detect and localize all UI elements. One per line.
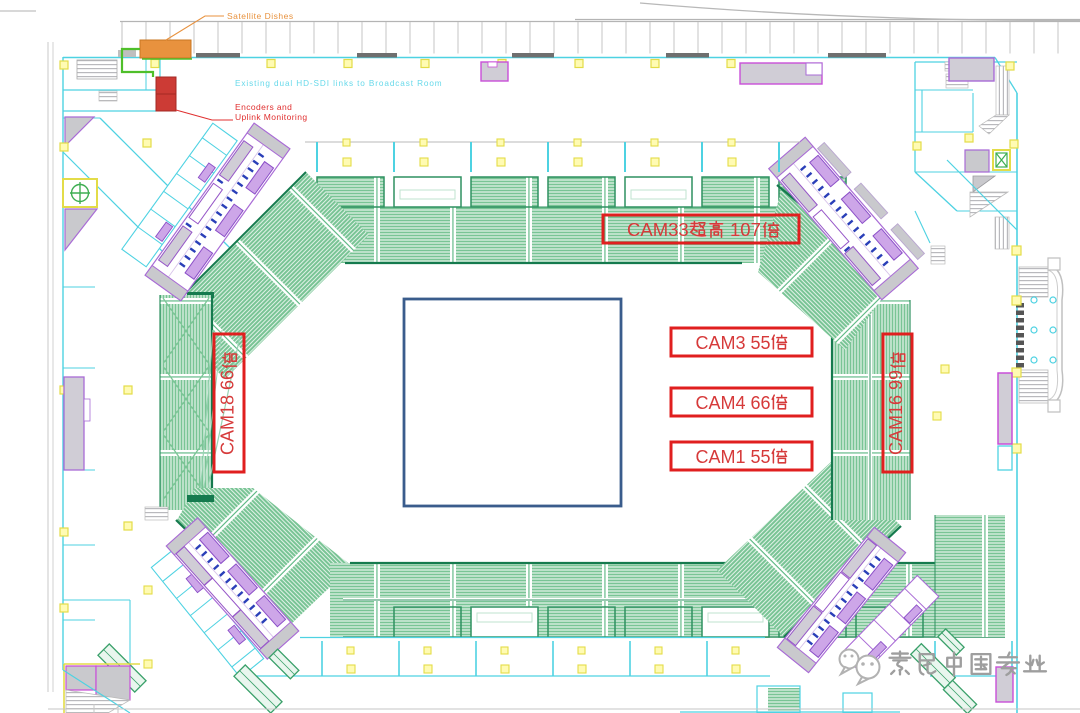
svg-text:CAM16 99: CAM16 99 [886,370,906,455]
svg-text:107: 107 [730,219,761,240]
svg-text:CAM4 66: CAM4 66 [696,393,771,413]
svg-text:Uplink Monitoring: Uplink Monitoring [235,112,307,122]
svg-text:CAM3 55: CAM3 55 [696,333,771,353]
svg-text:Satellite Dishes: Satellite Dishes [227,11,294,21]
svg-text:Encoders and: Encoders and [235,102,292,112]
svg-text:CAM33: CAM33 [627,219,689,240]
svg-text:Existing dual HD-SDI links to: Existing dual HD-SDI links to Broadcast … [235,79,443,88]
svg-text:CAM1 55: CAM1 55 [696,447,771,467]
svg-text:CAM18 66: CAM18 66 [218,370,238,455]
